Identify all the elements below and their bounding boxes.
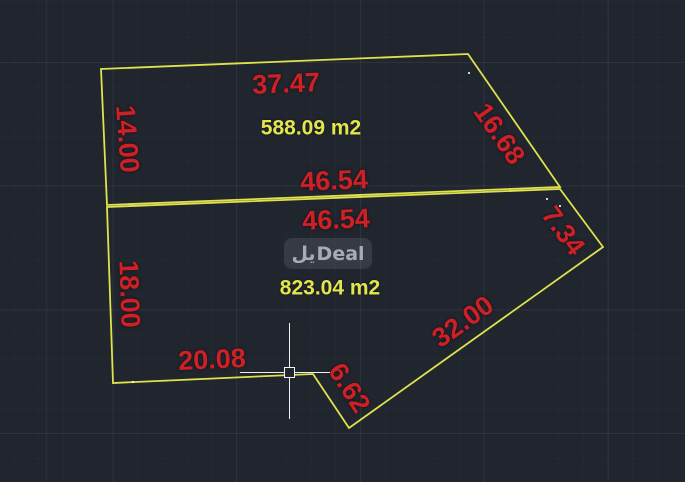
dim-label-46.54: 46.54 [300,166,369,196]
vertex-point-marker [546,198,548,200]
dim-label-46.54: 46.54 [302,205,371,235]
vertex-point-marker [559,205,561,207]
watermark-arabic-text: يل [291,243,315,265]
dim-label-18.00: 18.00 [114,260,143,328]
vertex-point-marker [468,72,470,74]
watermark-latin-text: Deal [317,243,365,265]
dim-label-20.08: 20.08 [178,345,247,375]
watermark-badge: يلDeal [284,238,372,269]
dim-label-37.47: 37.47 [252,69,321,99]
dim-label-14.00: 14.00 [111,104,143,173]
pickbox-cursor-square [284,367,295,378]
cad-viewport[interactable]: 588.09 m2823.04 m237.4714.0016.6846.5446… [0,0,685,482]
lower-parcel-area-label: 823.04 m2 [280,278,380,299]
upper-parcel-area-label: 588.09 m2 [261,118,361,139]
vertex-point-marker [132,381,134,383]
